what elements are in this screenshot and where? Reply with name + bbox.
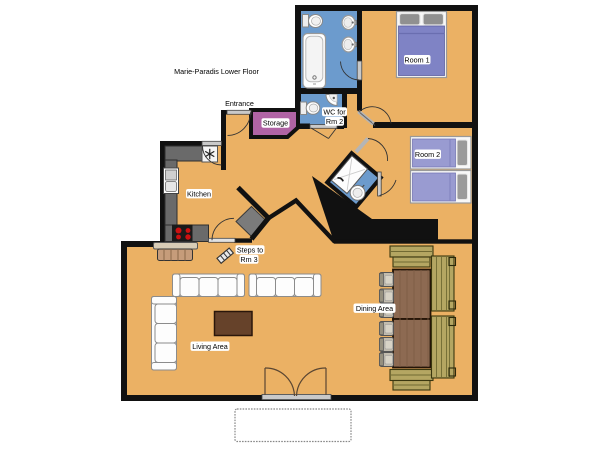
svg-text:Dining Area: Dining Area	[356, 304, 393, 313]
svg-text:Steps to: Steps to	[237, 246, 263, 255]
svg-text:Living Area: Living Area	[192, 342, 228, 351]
svg-text:Kitchen: Kitchen	[187, 189, 211, 198]
svg-text:WC for: WC for	[323, 108, 346, 117]
svg-text:Marie-Paradis Lower Floor: Marie-Paradis Lower Floor	[174, 67, 259, 76]
svg-text:Rm 3: Rm 3	[240, 255, 257, 264]
svg-text:Room 2: Room 2	[415, 150, 440, 159]
svg-text:Rm 2: Rm 2	[326, 117, 343, 126]
svg-text:Storage: Storage	[263, 119, 288, 128]
svg-text:Room 1: Room 1	[404, 55, 429, 64]
svg-text:Entrance: Entrance	[225, 99, 254, 108]
